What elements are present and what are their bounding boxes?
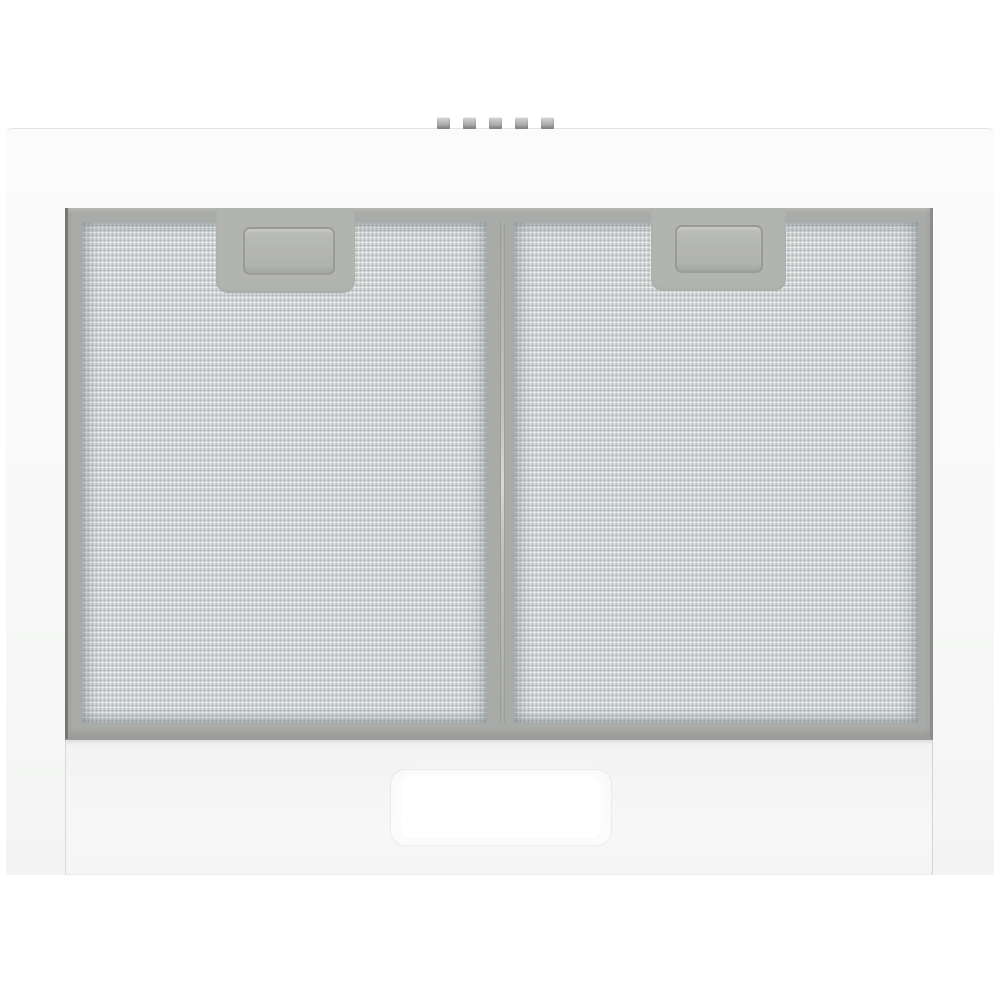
filter-handle-left xyxy=(243,227,335,275)
lamp-diffuser xyxy=(401,777,601,838)
lamp-bezel xyxy=(391,770,611,845)
filter-housing xyxy=(65,208,933,740)
control-button xyxy=(489,117,502,129)
control-buttons xyxy=(437,117,554,129)
filter-handle-right xyxy=(675,225,763,273)
handle-notch-left xyxy=(216,208,355,293)
front-panel xyxy=(65,740,933,875)
control-button xyxy=(541,117,554,129)
control-button xyxy=(515,117,528,129)
grease-filter-right xyxy=(514,222,918,723)
filter-divider-seam xyxy=(501,222,504,723)
product-photo xyxy=(0,0,1000,1000)
handle-notch-right xyxy=(651,208,786,291)
control-button xyxy=(437,117,450,129)
control-button xyxy=(463,117,476,129)
grease-filter-left xyxy=(82,222,487,723)
